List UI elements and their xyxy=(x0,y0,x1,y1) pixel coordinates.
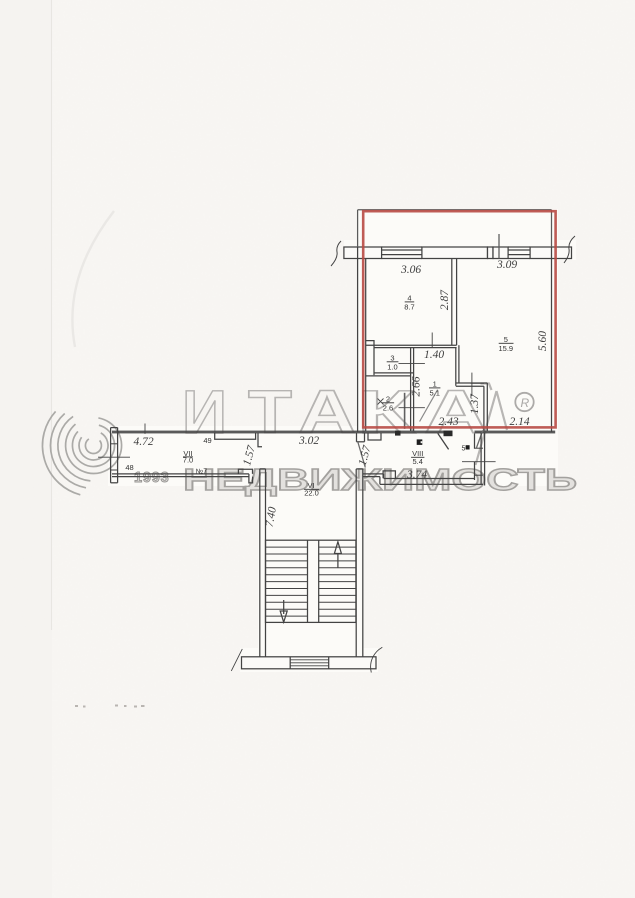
svg-text:4: 4 xyxy=(407,294,411,303)
svg-text:5.1: 5.1 xyxy=(429,389,439,398)
svg-text:5.60: 5.60 xyxy=(537,331,549,351)
svg-text:5: 5 xyxy=(504,335,508,344)
svg-text:3.74: 3.74 xyxy=(406,469,427,481)
svg-text:2.43: 2.43 xyxy=(438,416,458,428)
svg-text:3.09: 3.09 xyxy=(496,259,517,271)
svg-text:2.14: 2.14 xyxy=(509,416,529,428)
svg-text:15.9: 15.9 xyxy=(498,344,513,353)
svg-text:5: 5 xyxy=(462,446,466,453)
svg-text:№7: №7 xyxy=(196,469,208,476)
svg-text:1993: 1993 xyxy=(134,470,169,486)
svg-text:5.4: 5.4 xyxy=(412,457,422,466)
svg-text:1: 1 xyxy=(433,380,437,389)
svg-text:8.7: 8.7 xyxy=(404,303,414,312)
svg-text:22.0: 22.0 xyxy=(304,489,319,498)
svg-text:2.87: 2.87 xyxy=(439,289,451,310)
svg-text:2.6: 2.6 xyxy=(383,404,393,413)
svg-text:Т: Т xyxy=(248,378,292,446)
svg-text:3.02: 3.02 xyxy=(298,435,319,447)
svg-text:1.0: 1.0 xyxy=(387,363,397,372)
svg-text:R: R xyxy=(521,396,530,410)
svg-text:2: 2 xyxy=(386,395,390,404)
svg-text:1.40: 1.40 xyxy=(424,349,444,361)
svg-text:48: 48 xyxy=(125,463,133,472)
svg-text:3.06: 3.06 xyxy=(400,264,421,276)
svg-text:4.72: 4.72 xyxy=(134,436,154,448)
svg-text:2.66: 2.66 xyxy=(411,376,423,396)
svg-text:3: 3 xyxy=(390,354,394,363)
svg-text:49: 49 xyxy=(203,436,211,445)
svg-text:1.37: 1.37 xyxy=(469,393,481,414)
